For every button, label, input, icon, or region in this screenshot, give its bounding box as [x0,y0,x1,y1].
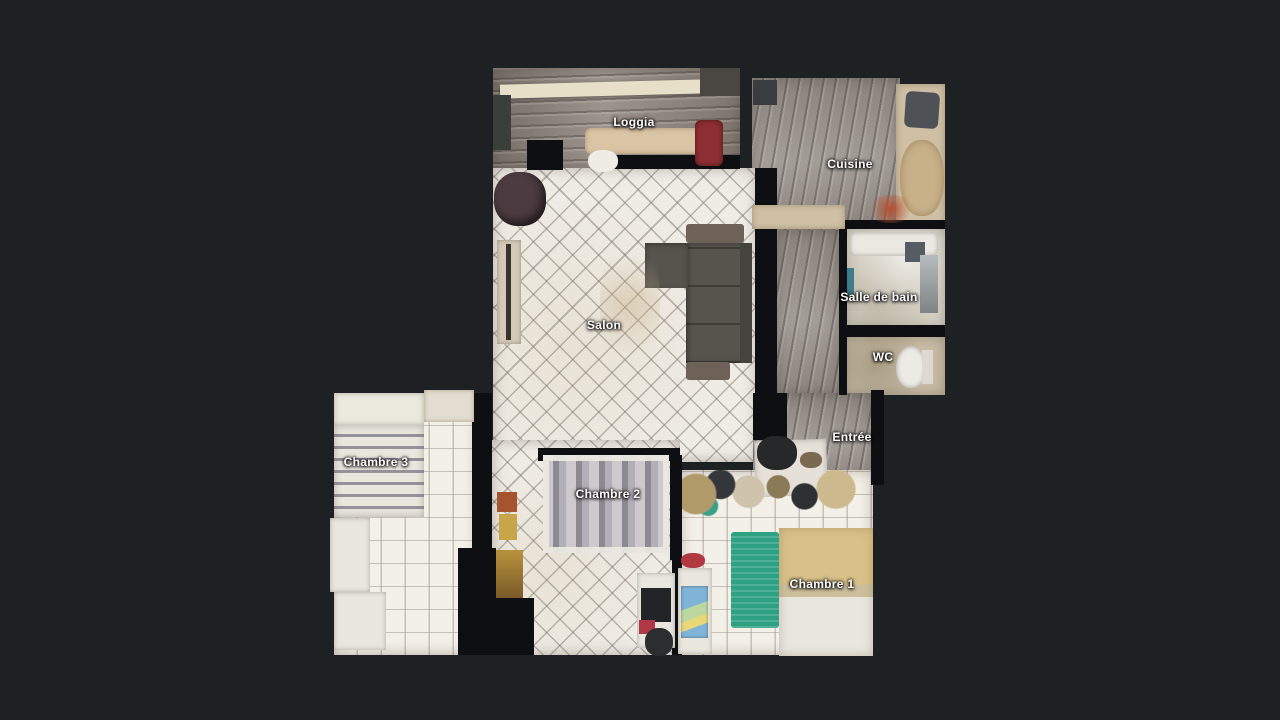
wardrobe-chambre3 [458,548,496,655]
salon-radiator-rod [506,244,511,340]
loggia-chair [588,150,618,172]
chambre3-bed-pillow [334,393,424,425]
bathroom-mirror [920,255,938,313]
chambre1-shelf-clutter [682,470,857,518]
floorplan-canvas[interactable]: Loggia Cuisine Salon Salle de bain WC En… [0,0,1280,720]
chambre2-chair [645,628,673,656]
salon-couch-body [686,243,744,363]
wall-entree-right [871,390,884,485]
hallway-floor[interactable] [777,230,839,395]
salon-couch-armrest-bottom [686,362,730,380]
loggia-dark-corner [493,95,511,150]
wall-bathroom-wc [845,325,945,337]
chambre3-shelf-topright [424,390,474,422]
entree-chair [757,436,797,470]
chambre3-side-desk [330,518,370,592]
wall-salon-hallway [755,168,777,395]
wc-toilet-tank [922,350,933,384]
chambre1-bed [779,528,873,656]
wall-hallway-bathroom [839,228,847,395]
bathroom-teal-item [847,268,854,298]
chambre2-door-clutter-yellow [499,514,517,540]
chambre1-red-bag [681,553,705,568]
wall-entree-corner [753,393,787,440]
chambre3-bed-blanket [334,425,424,517]
salon-couch-back [740,243,752,363]
salon-couch-armrest-top [686,224,744,243]
wall-loggia-notch [527,140,563,170]
cuisine-red-glow [868,195,913,223]
chambre1-map-poster [681,586,708,638]
loggia-clutter-topright [700,68,740,96]
chambre3-bottom-desk [334,592,386,650]
chambre1-green-rug [731,532,779,628]
chambre2-bed [543,455,669,553]
wall-chambre2-lower-left [496,598,534,655]
wall-chambre2-chambre1-upper [670,455,682,560]
salon-radiator [497,240,521,344]
chambre2-cabinet-yellow [496,550,523,598]
cuisine-counter-bottom [752,205,845,229]
wall-chambre3-right [472,393,492,553]
chambre2-door-clutter-red [497,492,517,512]
cuisine-dark-corner [753,80,777,105]
salon-beanbag [494,172,546,226]
salon-floor-stain [600,240,660,370]
cuisine-dark-table [904,91,940,129]
entree-clutter [800,452,822,468]
loggia-red-object [695,120,723,166]
chambre2-laptop [641,588,671,622]
